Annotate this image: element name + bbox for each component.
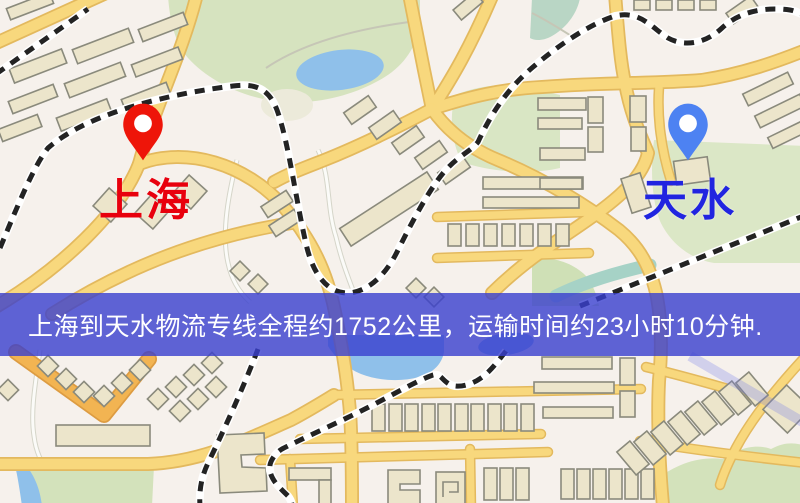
destination-pin-icon xyxy=(667,100,709,164)
map-stage: 上海 天水 上海到天水物流专线全程约1752公里，运输时间约23小时10分钟. xyxy=(0,0,800,503)
map-background xyxy=(0,0,800,503)
origin-pin-icon xyxy=(122,100,164,164)
origin-label: 上海 xyxy=(99,179,193,223)
route-banner: 上海到天水物流专线全程约1752公里，运输时间约23小时10分钟. xyxy=(0,293,800,356)
destination-label: 天水 xyxy=(643,179,737,223)
route-banner-text: 上海到天水物流专线全程约1752公里，运输时间约23小时10分钟. xyxy=(28,307,763,343)
